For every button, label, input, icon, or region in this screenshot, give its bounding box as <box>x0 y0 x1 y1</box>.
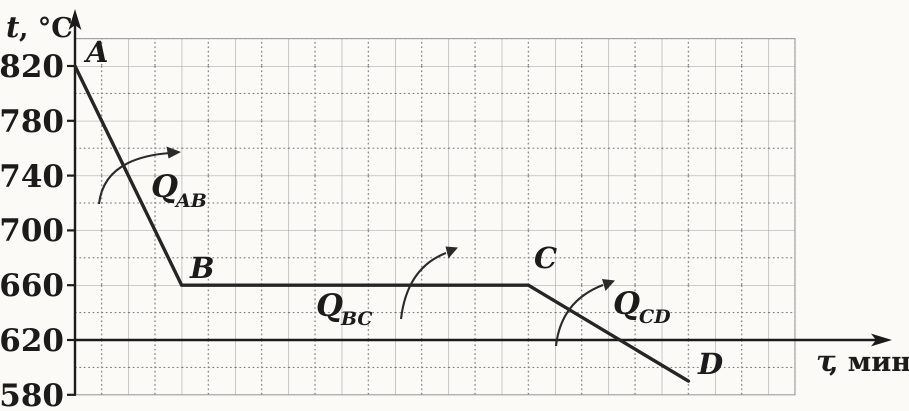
y-tick-620: 620 <box>0 323 64 359</box>
heat-label-qab-sub: AB <box>174 190 207 212</box>
y-axis-title: t , °C <box>6 10 73 44</box>
x-axis-unit: , мин <box>829 347 909 378</box>
y-axis-unit: , °C <box>19 13 73 44</box>
heat-label-qab-main: Q <box>151 169 178 205</box>
y-tick-660: 660 <box>0 268 64 304</box>
heat-label-qbc-sub: BC <box>340 308 373 330</box>
point-label-d: D <box>697 347 723 381</box>
chart-canvas: 820 780 740 700 660 620 580 t , °C τ , м… <box>0 0 909 411</box>
y-tick-740: 740 <box>0 159 64 195</box>
heat-label-qcd-main: Q <box>613 286 640 322</box>
point-label-c: C <box>534 241 557 275</box>
y-tick-labels: 820 780 740 700 660 620 580 <box>0 49 64 411</box>
heat-label-qbc-main: Q <box>316 288 343 324</box>
y-tick-580: 580 <box>0 378 64 411</box>
y-tick-780: 780 <box>0 104 64 140</box>
point-label-b: B <box>189 251 215 285</box>
y-tick-700: 700 <box>0 213 64 249</box>
heat-label-qcd-sub: CD <box>639 306 671 328</box>
x-axis-title: τ , мин <box>816 344 909 378</box>
y-axis-symbol: t <box>6 10 20 44</box>
point-label-a: A <box>83 35 109 69</box>
y-tick-820: 820 <box>0 49 64 85</box>
graph-paper-grid <box>75 39 795 395</box>
cooling-graph-figure: 820 780 740 700 660 620 580 t , °C τ , м… <box>0 0 909 411</box>
